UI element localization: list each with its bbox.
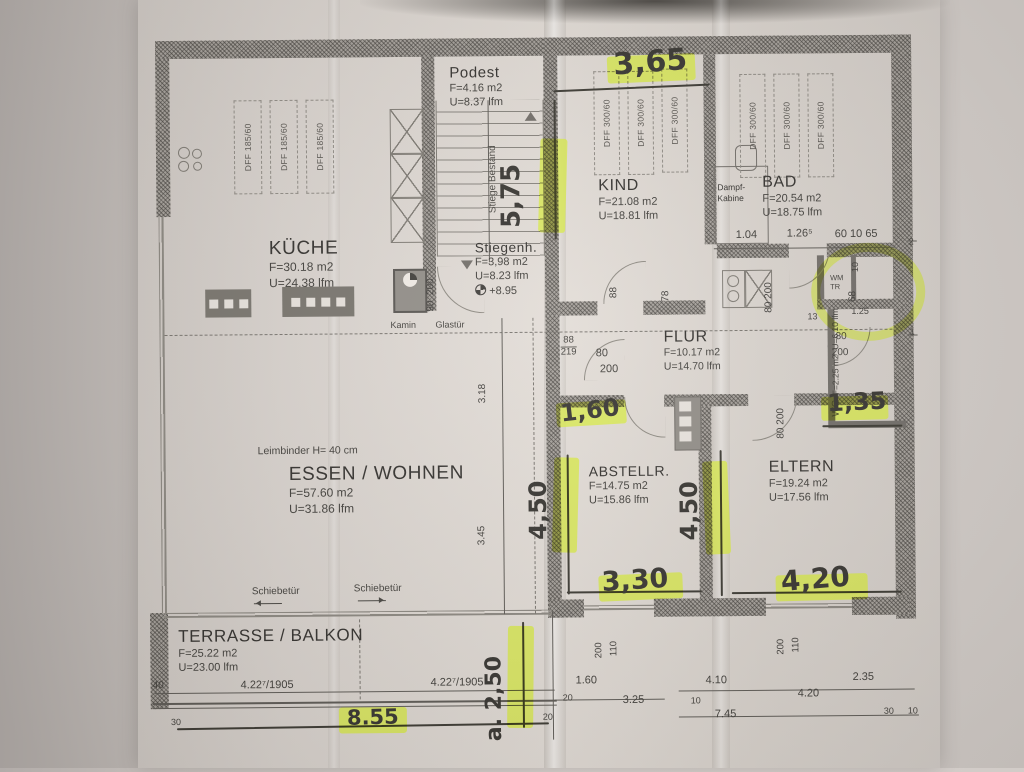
window-strip	[584, 605, 654, 611]
dimension-value: 3.18	[477, 384, 488, 404]
dimension-value: 80	[596, 347, 608, 359]
dimension-value: 4.20	[798, 687, 820, 699]
room-bad: BAD F=20.54 m2 U=18.75 lfm	[762, 173, 822, 220]
room-perimeter: U=24.38 lfm	[269, 275, 339, 291]
dimension-value: 10	[691, 695, 701, 705]
room-perimeter: U=15.86 lfm	[589, 493, 670, 508]
window-strip	[159, 217, 167, 615]
level-value: +8.95	[489, 285, 517, 297]
beam-dashline	[532, 318, 536, 614]
kamin-flue-icon	[403, 273, 417, 287]
handwritten-dimension: 4,20	[780, 560, 851, 598]
roof-window-label: DFF 185/60	[279, 123, 289, 171]
room-name: FLUR	[664, 328, 721, 346]
room-perimeter: U=8.23 lfm	[475, 269, 538, 284]
highlight-mark	[507, 626, 534, 728]
roof-window: DFF 300/60	[739, 74, 766, 178]
room-name: Podest	[449, 64, 503, 81]
highlight-circle	[811, 242, 926, 341]
room-perimeter: U=17.56 lfm	[769, 490, 835, 505]
room-name: TERRASSE / BALKON	[178, 625, 363, 647]
dimension-value: 200	[832, 347, 849, 358]
room-name: Stiegenh.	[475, 240, 538, 256]
wardrobe-cell	[679, 431, 691, 441]
dimension-value: 4.10	[706, 674, 728, 686]
room-name: ABSTELLR.	[589, 463, 670, 480]
room-area: F=3,98 m2	[475, 255, 538, 270]
roof-window-label: DFF 300/60	[602, 99, 612, 147]
wall-segment	[654, 598, 766, 617]
roof-window-label: DFF 185/60	[315, 123, 325, 171]
room-perimeter: U=31.86 lfm	[289, 500, 464, 517]
handwritten-dimension: 3,30	[601, 563, 669, 598]
dampfkabine-line1: Dampf-	[717, 182, 745, 193]
room-terrasse: TERRASSE / BALKON F=25.22 m2 U=23.00 lfm	[178, 625, 363, 675]
room-area: F=20.54 m2	[762, 191, 822, 206]
dimension-value: 4.22⁷/1905	[431, 676, 484, 688]
dimension-value: 200	[775, 639, 786, 655]
room-name: KÜCHE	[269, 238, 339, 261]
window-strip	[766, 603, 852, 609]
dimension-value: 30	[884, 706, 894, 716]
roof-window: DFF 300/60	[807, 73, 834, 177]
dimension-value: 10	[908, 705, 918, 715]
photo-of-floor-plan: Stiege Bestand DFF 185/60	[0, 0, 1024, 768]
glass-front	[164, 610, 552, 618]
room-name: ESSEN / WOHNEN	[289, 462, 464, 486]
shaft-cross	[390, 153, 424, 199]
room-area: F=14.75 m2	[589, 479, 670, 494]
highlight-mark	[538, 138, 567, 233]
dimension-value: 80 200	[775, 408, 786, 439]
kitchen-counter	[205, 289, 251, 317]
room-kind: KIND F=21.08 m2 U=18.81 lfm	[598, 177, 658, 224]
room-name: BAD	[762, 173, 822, 192]
dimension-value: 60 10 65	[835, 228, 878, 240]
level-row: +8.95	[475, 283, 538, 298]
slide-arrow-left-icon	[254, 603, 282, 604]
dimension-value: 3.45	[476, 526, 487, 546]
floor-plan-drawing: Stiege Bestand DFF 185/60	[0, 0, 1024, 772]
wall-segment	[852, 597, 910, 616]
room-kueche: KÜCHE F=30.18 m2 U=24.38 lfm	[269, 238, 339, 292]
wall-segment	[155, 35, 905, 60]
roof-window: DFF 185/60	[234, 100, 263, 194]
handwritten-dimension: 5,75	[496, 164, 527, 228]
room-perimeter: U=18.75 lfm	[762, 206, 822, 221]
dimension-value: 110	[608, 641, 619, 656]
wall-segment	[717, 244, 789, 259]
dimension-value: 1.60	[576, 674, 598, 686]
dimension-value: 1.26⁵	[787, 227, 813, 239]
highlight-mark	[702, 461, 731, 555]
dimension-value: 88	[608, 287, 619, 298]
roof-window-label: DFF 300/60	[636, 99, 646, 147]
room-area: F=10.17 m2	[664, 346, 721, 360]
dimension-value: 30	[171, 717, 181, 727]
dimension-line	[501, 318, 505, 614]
dimension-value: 110	[790, 637, 801, 652]
dimension-line	[679, 688, 915, 691]
room-flur: FLUR F=10.17 m2 U=14.70 lfm	[664, 328, 721, 374]
room-area: F=19.24 m2	[769, 476, 835, 491]
highlight-mark	[552, 457, 579, 553]
dimension-value: 3.25	[623, 694, 645, 706]
shaft-cross	[390, 109, 424, 155]
stair-arrow-up-icon	[525, 106, 537, 121]
room-area: F=4.16 m2	[449, 81, 503, 96]
wall-segment	[559, 301, 597, 315]
room-name: KIND	[598, 177, 658, 196]
wall-segment	[155, 59, 170, 217]
dimension-value: 200	[593, 642, 604, 658]
handwritten-dimension: a. 2,50	[481, 656, 507, 741]
room-podest: Podest F=4.16 m2 U=8.37 lfm	[449, 64, 503, 110]
stove-burner	[193, 162, 202, 171]
stove-burner	[178, 161, 189, 172]
appliance-burner	[727, 290, 739, 302]
dimension-value: 4.22⁷/1905	[241, 679, 294, 691]
beam-dashline	[165, 329, 893, 336]
wardrobe-cell	[679, 401, 691, 411]
room-dampfkabine: Dampf- Kabine	[717, 182, 745, 204]
room-name: ELTERN	[769, 458, 835, 477]
roof-window-label: DFF 300/60	[670, 97, 680, 145]
room-stiegenhaus: Stiegenh. F=3,98 m2 U=8.23 lfm +8.95	[475, 240, 538, 298]
wall-segment	[150, 613, 169, 709]
room-area: F=57.60 m2	[289, 484, 464, 501]
door-arc	[624, 397, 665, 438]
dimension-fraction: 88219	[561, 335, 577, 358]
dimension-value: 40	[153, 680, 164, 691]
dimension-value: 20	[543, 712, 553, 722]
roof-window-label: DFF 300/60	[748, 102, 758, 150]
room-area: F=30.18 m2	[269, 260, 339, 276]
roof-window: DFF 185/60	[270, 100, 299, 194]
roof-window-label: DFF 185/60	[243, 123, 253, 171]
room-eltern: ELTERN F=19.24 m2 U=17.56 lfm	[769, 458, 835, 505]
dimension-value: 7.45	[715, 708, 737, 720]
wall-segment	[643, 300, 705, 315]
dimension-value: 1.04	[736, 229, 758, 241]
shaft-cross	[390, 197, 424, 243]
handwritten-dimension: 3,65	[612, 42, 689, 83]
handwritten-dimension: 8.55	[347, 705, 399, 730]
level-marker-icon	[475, 284, 486, 295]
roof-window-label: DFF 300/60	[782, 102, 792, 150]
dimension-value: 1	[910, 326, 915, 336]
wardrobe-cell	[679, 416, 691, 426]
slide-arrow-right-icon	[358, 600, 386, 601]
room-perimeter: U=8.37 lfm	[449, 95, 503, 110]
dimension-value: 80 200	[763, 282, 774, 313]
kamin-label: Kamin	[390, 320, 416, 330]
roof-window: DFF 185/60	[306, 100, 335, 194]
wall-segment	[550, 599, 584, 617]
roof-window-label: DFF 300/60	[816, 101, 826, 149]
room-perimeter: U=14.70 lfm	[664, 360, 721, 374]
leimbinder-note: Leimbinder H= 40 cm	[258, 444, 358, 457]
room-essen-wohnen: ESSEN / WOHNEN F=57.60 m2 U=31.86 lfm	[289, 462, 465, 517]
dimension-value: 2	[909, 236, 914, 246]
room-perimeter: U=23.00 lfm	[178, 660, 363, 676]
handwritten-dimension: 4,50	[524, 480, 553, 539]
handwritten-dimension: 4,50	[675, 481, 704, 540]
room-area: F=21.08 m2	[598, 195, 658, 210]
schiebetuer-label: Schiebetür	[252, 586, 300, 597]
room-area: F=25.22 m2	[178, 645, 363, 661]
stove-burner	[178, 147, 190, 159]
room-perimeter: U=18.81 lfm	[598, 209, 658, 224]
stove-burner	[192, 149, 202, 159]
roof-window: DFF 300/60	[773, 73, 800, 177]
schiebetuer-label: Schiebetür	[354, 583, 402, 594]
dimension-value: 20	[563, 692, 573, 702]
glastuer-label: Glastür	[435, 319, 464, 329]
room-abstellraum: ABSTELLR. F=14.75 m2 U=15.86 lfm	[589, 463, 670, 508]
handwritten-dimension: 1,35	[827, 387, 887, 418]
dimension-value: 78	[660, 290, 671, 301]
dimension-value: 90 200	[425, 278, 436, 311]
appliance-burner	[727, 275, 739, 287]
dimension-value: 200	[600, 363, 618, 375]
dampfkabine-line2: Kabine	[717, 193, 745, 204]
dimension-value: 2.35	[853, 671, 875, 683]
